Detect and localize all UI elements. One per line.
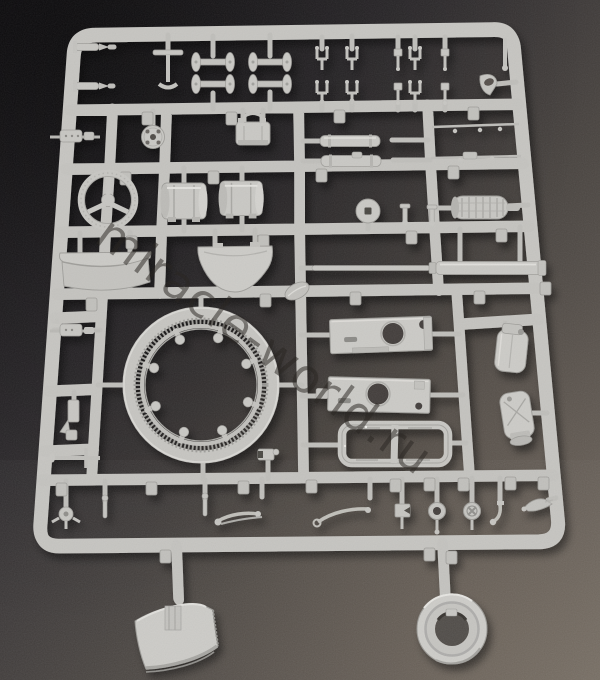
photo-grain: [0, 0, 600, 680]
photo-canvas: [0, 0, 600, 680]
sprue-photo: miracle-world.ru: [0, 0, 600, 680]
